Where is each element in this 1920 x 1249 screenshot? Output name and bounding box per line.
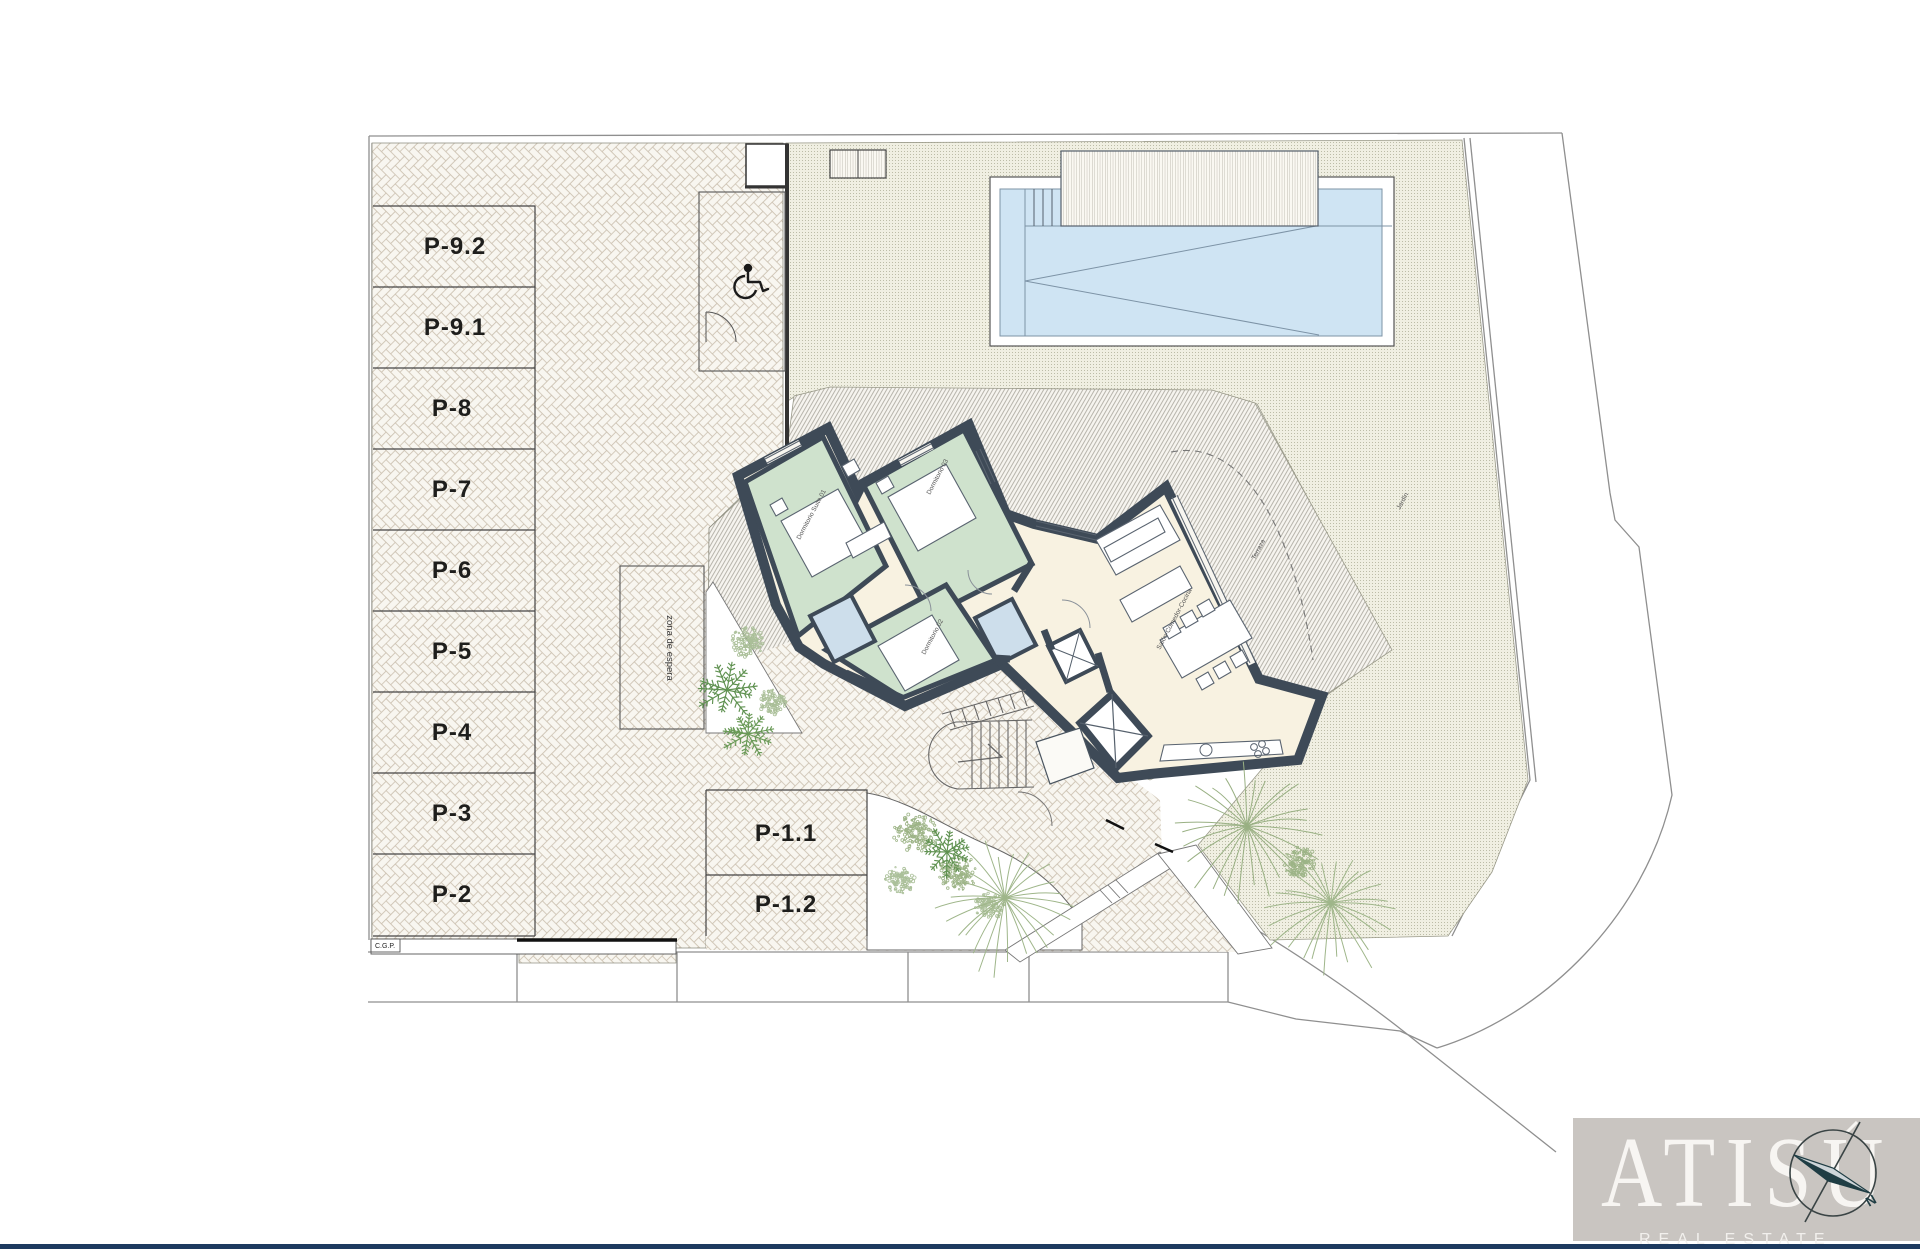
- svg-text:P-9.2: P-9.2: [424, 233, 486, 260]
- svg-text:P-8: P-8: [432, 395, 472, 422]
- svg-text:P-6: P-6: [432, 557, 472, 584]
- svg-text:P-5: P-5: [432, 638, 472, 665]
- svg-text:P-1.1: P-1.1: [755, 820, 817, 847]
- svg-text:zona de espera: zona de espera: [664, 615, 675, 681]
- svg-text:P-1.2: P-1.2: [755, 891, 817, 918]
- svg-text:C.G.P.: C.G.P.: [375, 943, 395, 950]
- svg-text:P-7: P-7: [432, 476, 472, 503]
- svg-text:P-4: P-4: [432, 719, 472, 746]
- svg-text:P-2: P-2: [432, 881, 472, 908]
- svg-text:P-9.1: P-9.1: [424, 314, 486, 341]
- svg-text:P-3: P-3: [432, 800, 472, 827]
